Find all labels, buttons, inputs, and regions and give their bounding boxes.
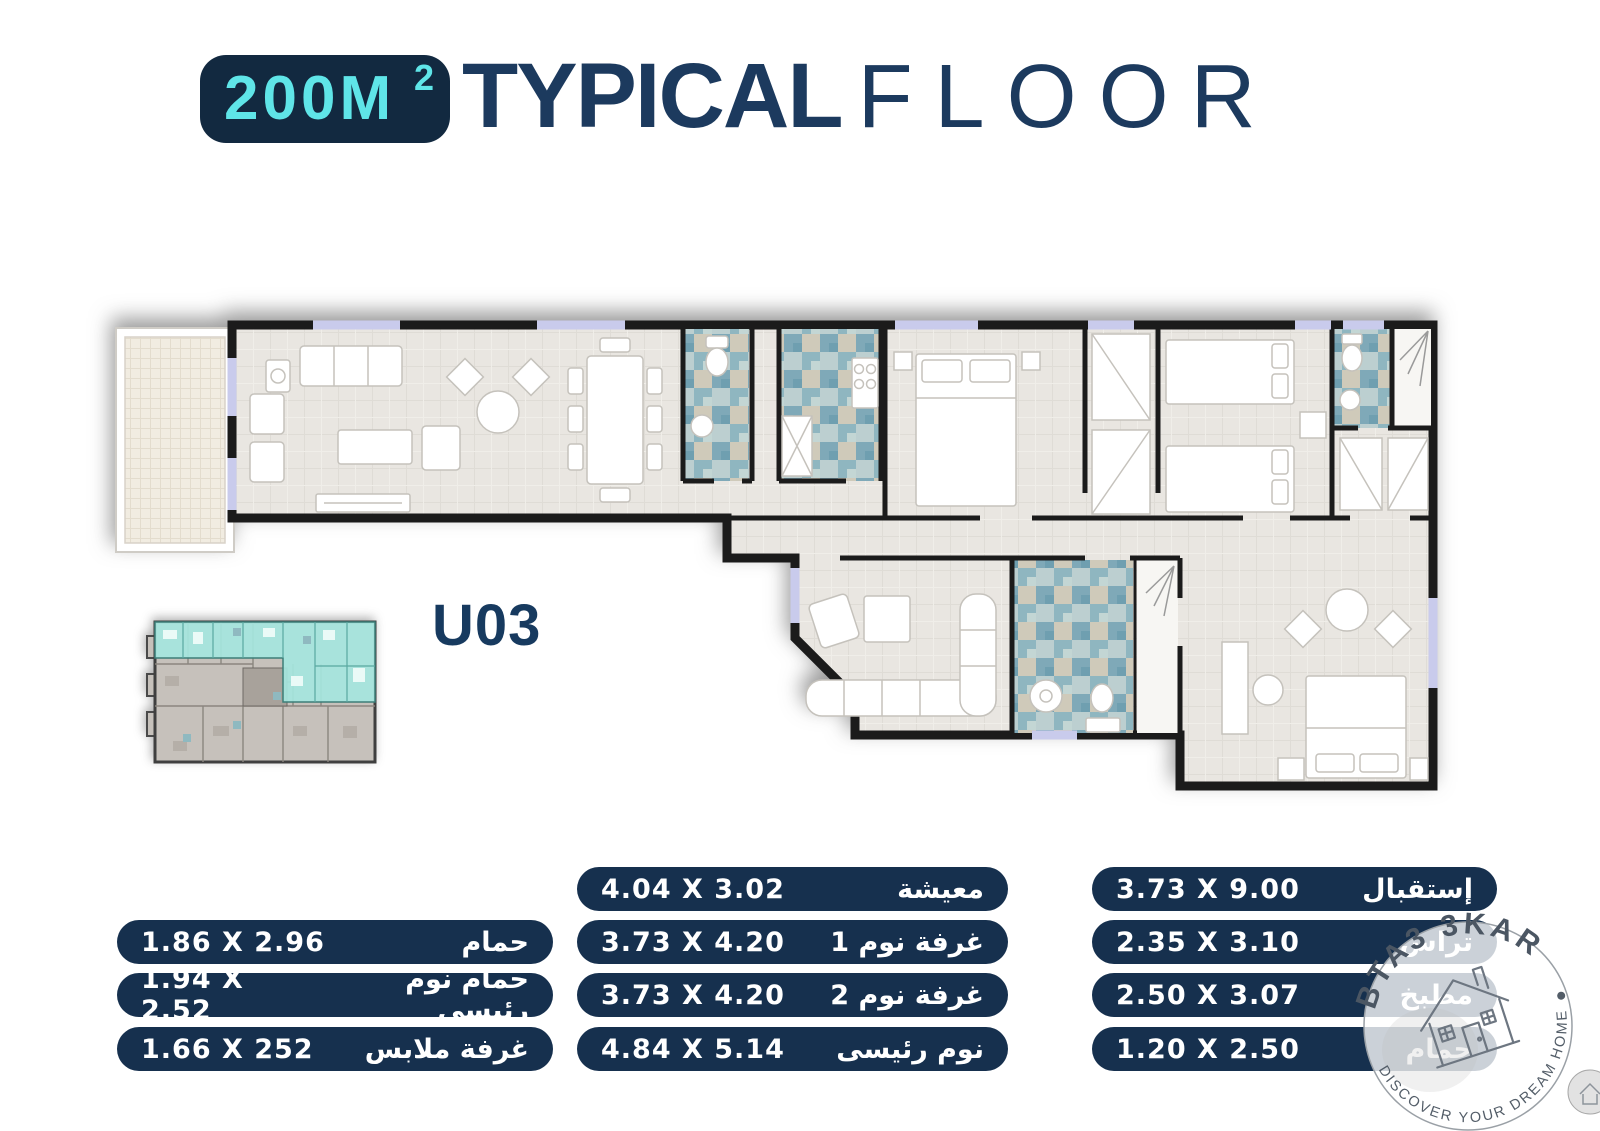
area-badge: 200M 2	[200, 55, 450, 143]
armchair	[250, 394, 284, 434]
area-value: 200M	[224, 63, 395, 134]
room-name: حمام	[462, 927, 530, 958]
room-name: حمام	[1406, 1034, 1474, 1065]
toilet	[1091, 684, 1113, 712]
room-name: معيشة	[897, 874, 984, 905]
room-name: حمام نوم رئيسى	[316, 964, 529, 1026]
dim-value: 4.04 X 3.02	[601, 874, 785, 905]
dim-value: 1.86 X 2.96	[141, 927, 325, 958]
bench	[1410, 758, 1428, 780]
dim-value: 1.94 X 2.52	[141, 964, 316, 1026]
armchair	[422, 426, 460, 470]
dim-value: 3.73 X 4.20	[601, 927, 785, 958]
toilet	[706, 348, 728, 376]
dim-row-kitchen: 2.50 X 3.07 مطبخ	[1092, 973, 1497, 1017]
dim-row-bathroom-2: 1.86 X 2.96 حمام	[117, 920, 553, 964]
sink	[1340, 390, 1360, 410]
round-table	[1326, 589, 1368, 631]
wardrobe	[1222, 642, 1248, 734]
key-plan	[143, 606, 387, 772]
dining-table	[587, 356, 643, 484]
room-name: تراس	[1400, 927, 1473, 958]
square-table	[864, 596, 910, 642]
nightstand	[1300, 412, 1326, 438]
dim-row-master-bedroom: 4.84 X 5.14 نوم رئيسى	[577, 1027, 1008, 1071]
dim-value: 2.35 X 3.10	[1116, 927, 1300, 958]
room-name: إستقبال	[1362, 874, 1473, 905]
dim-row-living: 4.04 X 3.02 معيشة	[577, 867, 1008, 911]
terrace	[116, 328, 234, 552]
room-name: مطبخ	[1400, 980, 1474, 1011]
dim-value: 1.20 X 2.50	[1116, 1034, 1300, 1065]
master-bathroom-floor	[1014, 560, 1133, 733]
dim-row-bathroom: 1.20 X 2.50 حمام	[1092, 1027, 1497, 1071]
toilet	[1342, 345, 1362, 371]
room-name: غرفة نوم 2	[830, 980, 984, 1011]
unit-label: U03	[432, 592, 541, 659]
l-sofa	[960, 594, 996, 716]
page-title: TYPICALFLOOR	[462, 44, 1278, 148]
dim-value: 1.66 X 252	[141, 1034, 314, 1065]
tv-unit	[266, 360, 290, 392]
nightstand	[1022, 352, 1040, 370]
toilet-tank	[1342, 334, 1362, 344]
sofa	[300, 346, 402, 386]
coffee-table	[338, 430, 412, 464]
vanity	[1086, 718, 1120, 732]
dim-row-bedroom-2: 3.73 X 4.20 غرفة نوم 2	[577, 973, 1008, 1017]
toilet-tank	[706, 336, 728, 348]
shower-2-floor	[1137, 560, 1178, 733]
dim-row-bedroom-1: 3.73 X 4.20 غرفة نوم 1	[577, 920, 1008, 964]
dim-row-master-bathroom: 1.94 X 2.52 حمام نوم رئيسى	[117, 973, 553, 1017]
title-secondary: FLOOR	[858, 47, 1278, 147]
dim-value: 3.73 X 9.00	[1116, 874, 1300, 905]
dim-row-terrace: 2.35 X 3.10 تراس	[1092, 920, 1497, 964]
room-name: غرفة ملابس	[365, 1034, 529, 1065]
sink	[1030, 680, 1062, 712]
dim-value: 2.50 X 3.07	[1116, 980, 1300, 1011]
dim-value: 4.84 X 5.14	[601, 1034, 785, 1065]
area-superscript: 2	[414, 57, 434, 99]
bench	[1278, 758, 1304, 780]
dim-row-reception: 3.73 X 9.00 إستقبال	[1092, 867, 1497, 911]
room-name: نوم رئيسى	[836, 1034, 984, 1065]
armchair	[250, 442, 284, 482]
title-primary: TYPICAL	[462, 45, 842, 147]
page: 200M 2 TYPICALFLOOR	[0, 0, 1600, 1131]
nightstand	[894, 352, 912, 370]
dim-value: 3.73 X 4.20	[601, 980, 785, 1011]
stool	[1253, 675, 1283, 705]
dim-row-dressing-room: 1.66 X 252 غرفة ملابس	[117, 1027, 553, 1071]
corner-stamp-icon	[1560, 1066, 1600, 1122]
room-name: غرفة نوم 1	[830, 927, 984, 958]
sink	[691, 415, 713, 437]
round-table	[477, 391, 519, 433]
